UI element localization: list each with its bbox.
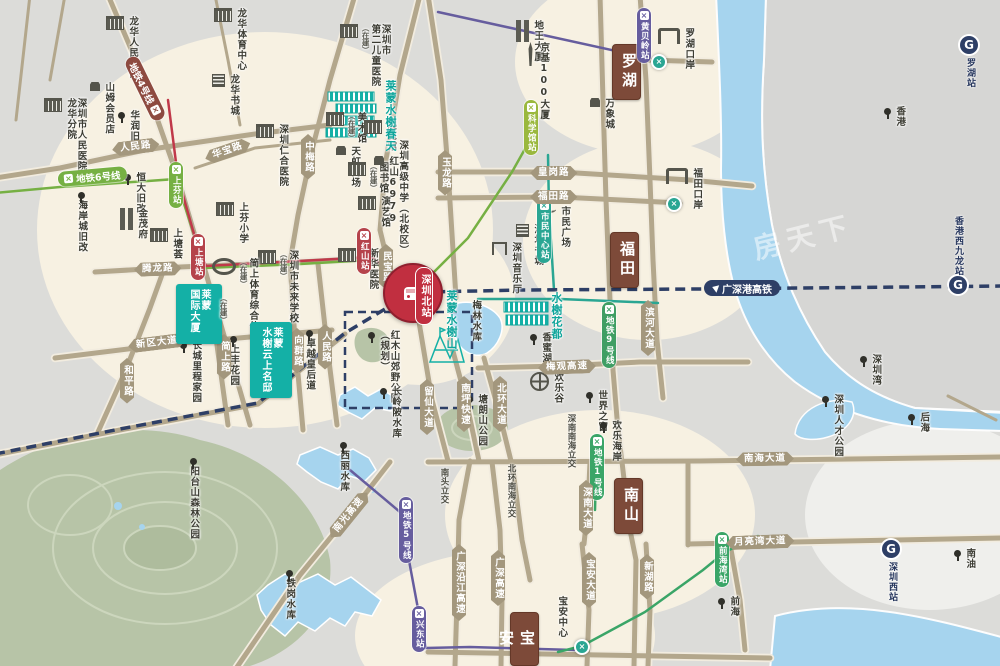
poi-label-text: 罗湖口岸 [683,28,693,70]
poi-山姆会员店: 山姆会员店 [90,82,113,135]
metro-station-pill-市民中心站: ×市民中心站 [537,198,551,263]
poi-label-text: 山姆会员店 [103,82,113,135]
poi-长城里程家园: 长城里程家园 [180,340,200,403]
under-construction-tag: （在建） [279,250,287,324]
district-box-福田: 福田 [610,232,639,288]
poi-marker-icon [822,396,829,403]
poi-深圳市人民医院龙华分院: 深圳市人民医院龙华分院 [44,98,86,172]
poi-万象城: 万象城 [590,98,613,130]
poi-后海: 后海 [908,412,928,433]
project-name-水榭花都: 水榭花都 [548,292,564,340]
under-construction-tag: （在建） [219,294,227,324]
poi-label-text: 深圳高级中学（北校区） [397,140,407,256]
metro-station-dot: × [666,196,682,212]
road-label-梅观高速: 梅观高速 [538,359,596,375]
road-label-华宝路: 华宝路 [203,137,252,166]
metro-logo-icon: × [149,104,161,116]
gate-icon [658,28,680,44]
label-text: 地铁9号线 [605,316,614,365]
building-icon [256,124,274,138]
label-text: 市民中心站 [540,212,549,260]
road-label-和平路: 和平路 [120,358,134,404]
metro-station-dot: × [574,639,590,655]
metro-line-label: 地铁6号线 [75,167,121,185]
metro-logo-icon: × [194,237,203,246]
poi-marker-icon [908,414,915,421]
railway-station-label: 香港西九龙站 [952,216,965,276]
building-icon [44,98,62,112]
poi-卓越皇后道: 卓越皇后道 [304,328,314,391]
shenzhen-north-station-pill: 深圳北站 [415,267,433,325]
poi-前海: 前海 [718,596,738,617]
poi-marker-icon [954,550,961,557]
shop-icon [336,146,346,155]
project-box: 莱蒙国际大厦 [176,284,222,344]
poi-marker-icon [340,442,347,449]
poi-label-text: 深圳市第二儿童医院（在建） [361,24,390,87]
poi-南油: 南油 [954,548,974,569]
under-construction-tag: （在建） [347,112,355,144]
road-label-北环大道: 北环大道 [493,376,507,432]
poi-marker-icon [286,570,293,577]
poi-西丽水库: 西丽水库 [338,440,348,492]
poi-label-text: 上塘荟 [171,228,181,260]
interchange-label-北环南海立交: 北环南海立交 [505,464,517,518]
label-text: 兴东站 [415,620,424,649]
metro-line-label: 地铁4号线 [126,60,158,106]
poi-龙华体育中心: 龙华体育中心 [214,8,245,71]
poi-marker-icon [884,108,891,115]
shenzhen-location-map: 龙华体育中心龙华书城龙华人民医院山姆会员店华润旧改深圳市人民医院龙华分院深圳仁合… [0,0,1000,666]
metro-station-pill-上芬站: ×上芬站 [169,162,183,208]
poi-龙华书城: 龙华书城 [212,74,238,116]
poi-label-text: 后海 [918,412,928,433]
poi-marker-icon [380,388,387,395]
poi-label-text: 深圳仁合医院 [277,124,287,187]
metro-logo-icon: × [172,165,181,174]
spire-icon [526,42,535,66]
poi-label-text: 前海 [728,596,738,617]
road-label-人民路: 人民路 [318,324,332,370]
poi-深圳高级中学北校区: 深圳高级中学（北校区） [397,140,407,256]
district-box-宝安: 宝安 [510,612,539,666]
poi-label-text: 深圳湾 [870,354,880,386]
poi-label-text: 宝安中心 [556,596,566,638]
road-label-深南大道: 深南大道 [579,480,593,536]
label-text: 黄贝岭站 [640,22,649,60]
poi-marker-icon [718,598,725,605]
road-label-福田路: 福田路 [530,190,578,204]
project-box-text: 莱蒙国际大厦 [188,289,210,339]
under-construction-tag: （在建） [361,24,369,87]
building-icon [340,24,358,38]
road-label-玉龙路: 玉龙路 [438,150,452,196]
poi-label-text: 龙华书城 [228,74,238,116]
district-box-南山: 南山 [614,478,643,534]
road-label-广深沿江高速: 广深沿江高速 [452,544,466,621]
shenzhen-north-station-circle [383,263,443,323]
poi-marker-icon [860,356,867,363]
poi-label-text: 梅林水库 [470,300,480,342]
metro-station-pill-红山站: ×红山站 [357,228,371,274]
building-icon [216,202,234,216]
railway-station-icon: G [949,276,967,294]
poi-marker-icon [306,330,313,337]
building-icon [106,16,124,30]
poi-深圳湾: 深圳湾 [860,354,880,386]
poi-label-text: 深圳人才公园 [832,394,842,457]
project-box: 莱蒙水榭云上名邸 [250,322,292,398]
metro-logo-icon: × [605,305,614,314]
ferris-wheel-icon [530,372,549,391]
road-label-南海大道: 南海大道 [736,451,794,466]
map-labels-layer: 龙华体育中心龙华书城龙华人民医院山姆会员店华润旧改深圳市人民医院龙华分院深圳仁合… [0,0,1000,666]
building-icon [214,8,232,22]
rail-label: 广深港高铁 [722,281,772,296]
poi-欢乐谷: 欢乐谷 [530,372,562,404]
metro-station-pill-科学馆站: ×科学馆站 [524,100,538,155]
poi-label-text: 南油 [964,548,974,569]
project-name-莱蒙水榭春天: 莱蒙水榭春天 [382,80,398,152]
poi-上芬小学: 上芬小学 [216,202,247,244]
label-text: 前海湾站 [718,546,727,584]
poi-海岸城旧改: 海岸城旧改 [76,190,86,253]
label-text: 地铁1号线 [593,448,602,497]
poi-label-text: 阳台山森林公园 [188,466,198,540]
poi-label-text: 上芬小学 [237,202,247,244]
road-label-皇岗路: 皇岗路 [530,166,578,180]
poi-梅林水库: 梅林水库 [470,300,480,342]
poi-label-text: 京基100大厦 [538,42,548,120]
metro-logo-icon: × [593,437,602,446]
metro-station-pill-前海湾站: ×前海湾站 [715,532,729,587]
road-label-月亮湾大道: 月亮湾大道 [726,534,795,550]
metro-station-pill-兴东站: ×兴东站 [412,606,426,652]
rail-arrow-icon [711,283,719,293]
poi-label-text: 铁岗水库 [284,578,294,620]
road-label-腾龙路: 腾龙路 [134,261,182,277]
poi-长岭陂水库: 长岭陂水库 [380,386,400,439]
metro-station-pill-黄贝岭站: ×黄贝岭站 [637,8,651,63]
shop-icon [90,82,100,91]
poi-label-text: 市民广场 [559,206,569,248]
poi-label-text: 长岭陂水库 [390,386,400,439]
poi-label-text: 深圳市人民医院龙华分院 [65,98,86,172]
building-icon [150,228,168,242]
label-text: 科学馆站 [527,114,536,152]
poi-label-text: 万象城 [603,98,613,130]
label-text: 红山站 [360,242,369,271]
road-label-向群路: 向群路 [290,328,304,374]
poi-深圳市第二儿童医院: 深圳市第二儿童医院（在建） [340,24,390,87]
watermark: 房天下 [749,204,858,267]
metro-logo-icon: × [64,174,74,184]
building-icon [258,250,276,264]
road-label-滨河大道: 滨河大道 [641,300,655,356]
label-text: 地铁5号线 [402,511,411,560]
poi-label-text: 欢乐谷 [552,372,562,404]
metro-line-pill: ×地铁9号线 [602,302,616,368]
project-box-text: 莱蒙水榭云上名邸 [260,327,282,393]
poi-深圳市未来学校: 深圳市未来学校（在建） [258,250,297,324]
railway-station-label: 深圳西站 [886,562,899,602]
poi-label-text: 龙华体育中心 [235,8,245,71]
poi-label-text: 金茂府 [136,208,146,240]
poi-红山6979: 红山6979 [374,156,397,225]
metro-station-dot: × [651,54,667,70]
poi-label-text: 简上体育综合体（在建） [239,258,257,332]
poi-label-text: 西丽水库 [338,450,348,492]
label-text: 上塘站 [194,248,203,277]
road-label-宝安大道: 宝安大道 [582,552,596,608]
project-name-莱蒙水榭山: 莱蒙水榭山 [443,290,459,350]
poi-label-text: 长城里程家园 [190,340,200,403]
poi-label-text: 塘朗山公园 [476,394,486,447]
bookstore-icon [516,224,529,237]
building-icon [338,248,356,262]
metro-logo-icon: × [640,11,649,20]
poi-深圳人才公园: 深圳人才公园 [822,394,842,457]
building-icon [348,162,366,176]
poi-label-text: 香港 [894,106,904,127]
poi-香港: 香港 [884,106,904,127]
poi-金茂府: 金茂府 [120,208,146,240]
railway-station-icon: G [960,36,978,54]
metro-logo-icon: × [415,609,424,618]
road-label-南光高速: 南光高速 [325,488,372,542]
highspeed-rail-pill: 广深港高铁 [704,280,780,296]
poi-美术馆: 美术馆（在建） [326,112,365,144]
poi-label-text: 红山6979 [387,156,397,225]
interchange-label-深南南海立交: 深南南海立交 [565,414,577,468]
poi-深圳仁合医院: 深圳仁合医院 [256,124,287,187]
poi-marker-icon [600,422,607,429]
railway-station-icon: G [882,540,900,558]
road-label-南坪快速: 南坪快速 [457,376,471,432]
bookstore-icon [212,74,225,87]
building-icon [364,120,382,134]
metro-logo-icon: × [402,500,411,509]
poi-上塘荟: 上塘荟 [150,228,181,260]
poi-铁岗水库: 铁岗水库 [284,568,294,620]
road-label-新湖路: 新湖路 [640,554,654,600]
interchange-label-南头立交: 南头立交 [438,468,450,504]
label-text: 上芬站 [172,176,181,205]
poi-label-text: 美术馆（在建） [347,112,365,144]
building-icon [326,112,344,126]
poi-marker-icon [78,192,85,199]
railway-station-label: 罗湖站 [964,58,977,88]
poi-marker-icon [190,458,197,465]
metro-logo-icon: × [718,535,727,544]
metro-logo-icon: × [360,231,369,240]
road-label-留仙大道: 留仙大道 [420,379,434,435]
poi-marker-icon [586,392,593,399]
poi-宝安中心: 宝安中心 [556,596,566,638]
shop-icon [590,98,600,107]
under-construction-tag: （在建） [239,258,247,332]
towers-icon [516,20,529,42]
poi-label-text: 深圳市未来学校（在建） [279,250,297,324]
road-label-广深高速: 广深高速 [491,550,505,606]
road-label-中梅路: 中梅路 [301,134,315,180]
poi-label-text: 卓越皇后道 [304,338,314,391]
towers-icon [120,208,133,230]
gate-icon [666,168,688,184]
hall-icon [492,242,507,255]
metro-line-pill: ×地铁5号线 [399,497,413,563]
poi-marker-icon [368,332,375,339]
metro-logo-icon: × [527,103,536,112]
poi-label-text: 欢乐海岸 [610,420,620,462]
metro-station-pill-上塘站: ×上塘站 [191,234,205,280]
poi-marker-icon [118,112,125,119]
stadium-icon [212,258,236,275]
poi-label-text: 海岸城旧改 [76,200,86,253]
poi-label-text: 福田口岸 [691,168,701,210]
poi-阳台山森林公园: 阳台山森林公园 [188,456,198,540]
poi-marker-icon [530,334,537,341]
shop-icon [374,156,384,165]
